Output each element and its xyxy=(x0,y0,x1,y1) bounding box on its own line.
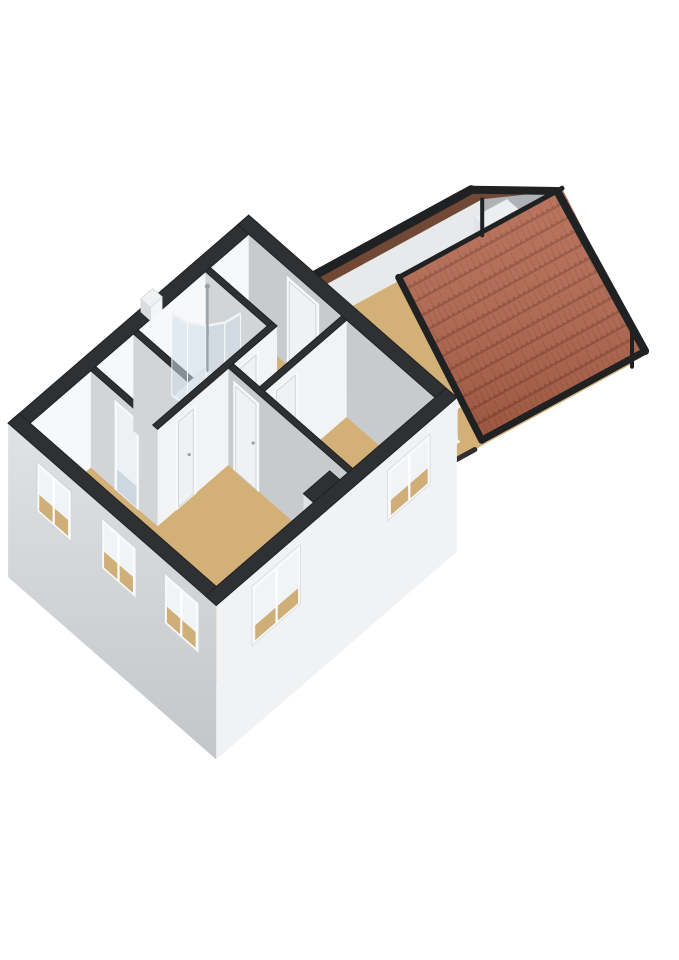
bedroom-1-door-handle xyxy=(252,441,255,444)
shower-head xyxy=(205,284,210,289)
shower-hose xyxy=(207,311,208,334)
shower-glass-panel xyxy=(172,313,188,405)
floorplan-canvas xyxy=(0,0,679,960)
floorplan-3d-render xyxy=(0,0,679,960)
toilet-door-panel xyxy=(179,409,194,507)
toilet-door-handle xyxy=(188,453,191,456)
roof-trim-far-rake-nw xyxy=(471,190,557,191)
bedroom-1-door-panel xyxy=(236,386,256,489)
